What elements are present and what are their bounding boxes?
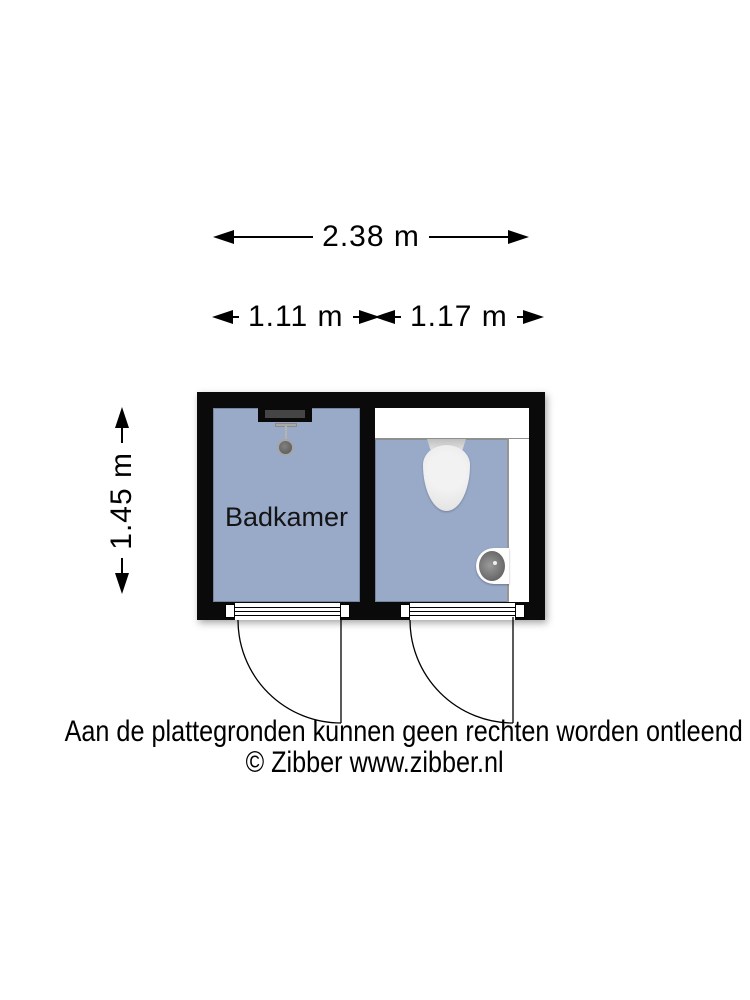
floorplan: Badkamer — [197, 392, 545, 620]
side-panel — [507, 439, 529, 602]
disclaimer-text: Aan de plattegronden kunnen geen rechten… — [0, 716, 750, 747]
arrowhead-left-icon — [213, 230, 234, 244]
dimension-right-room-width: 1.17 m — [374, 302, 530, 332]
dimension-line — [429, 236, 508, 238]
door-swing-right-icon — [410, 617, 513, 723]
shower-niche-inset — [265, 410, 305, 418]
door-jamb — [225, 604, 235, 618]
arrowhead-up-icon — [115, 407, 129, 428]
door-jamb — [340, 604, 350, 618]
door-jamb — [400, 604, 410, 618]
dimension-total-width: 2.38 m — [213, 222, 529, 252]
door-swing-left-icon — [238, 617, 341, 723]
room-toilet — [375, 408, 529, 602]
dimension-height: 1.45 m — [107, 407, 137, 594]
door-threshold-left — [235, 603, 340, 620]
floorplan-page: 2.38 m 1.11 m 1.17 m 1.45 m — [0, 0, 750, 1000]
dimension-line — [121, 428, 123, 443]
dimension-right-room-width-label: 1.17 m — [401, 302, 517, 332]
cistern-shelf — [375, 408, 529, 440]
dimension-line — [121, 558, 123, 573]
dimension-height-label: 1.45 m — [107, 443, 137, 559]
room-badkamer: Badkamer — [213, 408, 360, 602]
dimension-left-room-width: 1.11 m — [212, 302, 360, 332]
hand-basin-icon — [476, 548, 509, 584]
shower-head-icon — [277, 439, 294, 456]
arrowhead-left-icon — [212, 310, 233, 324]
dimension-left-room-width-label: 1.11 m — [239, 302, 353, 332]
toilet-bowl-icon — [423, 445, 470, 511]
dimension-line — [234, 236, 313, 238]
room-badkamer-label: Badkamer — [213, 502, 360, 533]
hand-basin-bowl — [479, 551, 505, 581]
hand-basin-drain — [493, 561, 497, 565]
copyright-text: © Zibber www.zibber.nl — [0, 747, 750, 778]
arrowhead-right-icon — [508, 230, 529, 244]
door-jamb — [515, 604, 525, 618]
door-threshold-right — [410, 603, 515, 620]
arrowhead-right-icon — [523, 310, 544, 324]
footer: Aan de plattegronden kunnen geen rechten… — [0, 716, 750, 778]
dimension-total-width-label: 2.38 m — [313, 222, 429, 252]
arrowhead-down-icon — [115, 573, 129, 594]
arrowhead-left-icon — [374, 310, 395, 324]
shower-niche — [258, 408, 312, 422]
